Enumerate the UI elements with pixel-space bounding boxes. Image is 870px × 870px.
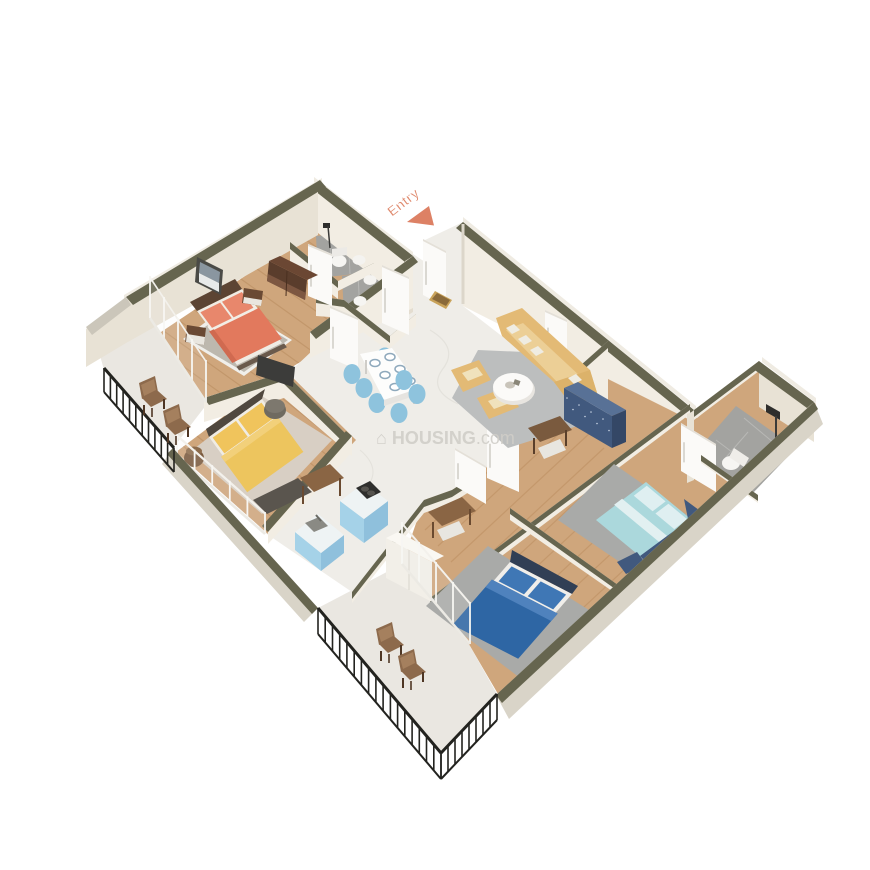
svg-text:⌂ HOUSING.com: ⌂ HOUSING.com [376, 428, 515, 448]
